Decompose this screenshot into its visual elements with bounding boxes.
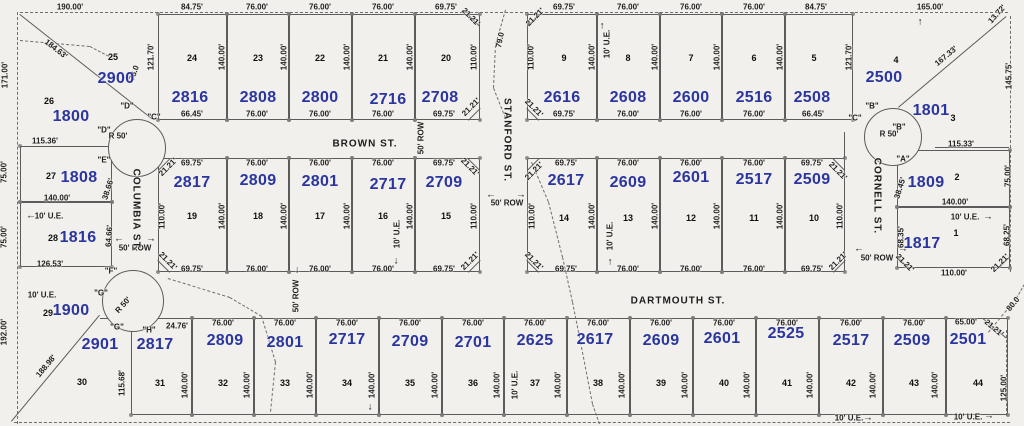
arrow-icon: ↓	[394, 256, 399, 267]
dimension-label: 69.75'	[553, 110, 575, 119]
lot-number: 43	[909, 378, 919, 388]
survey-monument-dot	[478, 118, 482, 122]
dimension-label: 140.00'	[588, 203, 597, 229]
survey-monument-dot	[754, 316, 758, 320]
boundary-dashed-line	[1006, 330, 1007, 416]
dimension-label: 140.00'	[306, 372, 315, 398]
lot-number: 1	[953, 228, 958, 238]
dimension-label: 69.75'	[553, 3, 575, 12]
dimension-label: 64.66'	[104, 225, 115, 247]
dimension-label: 121.70'	[845, 44, 854, 70]
dimension-label: 140.00'	[218, 44, 227, 70]
dimension-label: 76.00'	[617, 110, 639, 119]
lot-number: 11	[749, 213, 759, 223]
dimension-label: "B"	[865, 102, 878, 111]
lot-number: 10	[809, 213, 819, 223]
dimension-label: "E"	[98, 156, 111, 165]
lot-address: 2509	[894, 332, 931, 350]
lot-number: 41	[782, 378, 792, 388]
survey-monument-dot	[377, 413, 381, 417]
dimension-label: 110.00'	[941, 269, 967, 278]
lot-number: 7	[688, 53, 693, 63]
dimension-label: 140.00'	[776, 44, 785, 70]
lot-address: 1816	[60, 229, 97, 247]
survey-monument-dot	[944, 316, 948, 320]
lot-number: 30	[77, 377, 87, 387]
survey-monument-dot	[190, 413, 194, 417]
dimension-label: "H"	[142, 326, 155, 335]
lot-address: 2616	[544, 89, 581, 107]
dimension-label: 76.00'	[372, 110, 394, 119]
dimension-label: 10' U.E.	[35, 212, 64, 221]
dimension-label: 140.00'	[776, 203, 785, 229]
survey-monument-dot	[895, 266, 899, 270]
dimension-label: 140.00'	[493, 372, 502, 398]
dimension-label: 110.00'	[470, 44, 479, 70]
dimension-label: 76.00'	[309, 159, 331, 168]
survey-monument-dot	[225, 156, 229, 160]
dimension-label: 76.00'	[617, 159, 639, 168]
survey-monument-dot	[525, 270, 529, 274]
lot-address: 2617	[577, 331, 614, 349]
dimension-label: 76.00'	[713, 319, 735, 328]
dimension-label: 76.00'	[743, 110, 765, 119]
lot-address: 2625	[517, 332, 554, 350]
lot-number: 14	[559, 213, 569, 223]
dimension-label: 76.00'	[274, 319, 296, 328]
arrow-icon: ↑	[600, 21, 605, 32]
lot-address: 2509	[794, 171, 831, 189]
survey-monument-dot	[314, 316, 318, 320]
street-label: CORNELL ST.	[872, 158, 883, 234]
survey-monument-dot	[413, 270, 417, 274]
dimension-label: 76.00'	[246, 159, 268, 168]
arrow-icon: ↑	[918, 17, 923, 28]
lot-line	[844, 132, 845, 158]
survey-monument-dot	[252, 316, 256, 320]
lot-address: 2501	[950, 331, 987, 349]
arrow-icon: ↓	[368, 402, 373, 413]
survey-monument-dot	[658, 118, 662, 122]
parcel	[254, 318, 316, 415]
lot-address: 2608	[610, 89, 647, 107]
survey-monument-dot	[595, 118, 599, 122]
arrow-icon: →	[516, 190, 526, 201]
lot-number: 20	[441, 53, 451, 63]
dimension-label: 75.00'	[0, 161, 9, 183]
dimension-label: 69.75'	[555, 159, 577, 168]
arrow-icon: ←	[114, 234, 124, 245]
dimension-label: 76.00'	[680, 3, 702, 12]
boundary-dashed-line	[17, 12, 18, 424]
survey-monument-dot	[129, 413, 133, 417]
dimension-label: 76.00'	[372, 159, 394, 168]
dimension-label: 69.75'	[435, 3, 457, 12]
dimension-label: 140.00'	[280, 44, 289, 70]
dimension-label: 140.00'	[618, 372, 627, 398]
dimension-label: 76.00'	[372, 265, 394, 274]
survey-monument-dot	[843, 270, 847, 274]
dimension-label: 76.00'	[372, 3, 394, 12]
dimension-label: 76.00'	[212, 319, 234, 328]
dimension-label: 110.00'	[836, 203, 845, 229]
survey-monument-dot	[783, 118, 787, 122]
dimension-label: 10' U.E.	[603, 30, 612, 59]
dimension-label: 115.68'	[118, 370, 127, 396]
dimension-label: 69.75'	[181, 159, 203, 168]
lot-address: 2801	[267, 334, 304, 352]
dimension-label: 69.75'	[801, 265, 823, 274]
dimension-label: 115.33'	[948, 140, 974, 149]
lot-number: 33	[280, 378, 290, 388]
dimension-label: "A"	[896, 155, 909, 164]
boundary-dashed-line	[493, 45, 496, 88]
dimension-label: 121.70'	[147, 44, 156, 70]
dimension-label: 140.00'	[743, 372, 752, 398]
dimension-label: 140.00'	[181, 372, 190, 398]
dimension-label: 69.75'	[433, 159, 455, 168]
lot-address: 1808	[61, 169, 98, 187]
lot-address: 1817	[904, 235, 941, 253]
lot-number: 22	[315, 53, 325, 63]
survey-monument-dot	[817, 316, 821, 320]
lot-number: 4	[893, 55, 898, 65]
survey-monument-dot	[525, 118, 529, 122]
lot-address: 2517	[736, 171, 773, 189]
arrow-icon: ←	[26, 211, 36, 222]
lot-line	[11, 315, 100, 422]
dimension-label: 140.00'	[942, 198, 968, 207]
dimension-label: 140.00'	[406, 44, 415, 70]
dimension-label: 10' U.E.	[954, 413, 983, 422]
lot-number: 23	[253, 53, 263, 63]
dimension-label: 76.00'	[336, 319, 358, 328]
lot-address: 2609	[610, 174, 647, 192]
lot-address: 1900	[53, 302, 90, 320]
lot-number: 6	[751, 53, 756, 63]
lot-address: 2601	[673, 169, 710, 187]
survey-monument-dot	[225, 270, 229, 274]
arrow-icon: ↓	[295, 265, 300, 276]
survey-monument-dot	[628, 316, 632, 320]
dimension-label: 10' U.E.	[28, 291, 57, 300]
lot-number: 44	[973, 378, 983, 388]
dimension-label: 76.00'	[399, 319, 421, 328]
survey-monument-dot	[287, 156, 291, 160]
dimension-label: 76.00'	[524, 319, 546, 328]
dimension-label: 171.00'	[1, 62, 10, 88]
survey-monument-dot	[287, 118, 291, 122]
survey-monument-dot	[110, 200, 114, 204]
dimension-label: 115.36'	[32, 137, 58, 146]
dimension-label: 65.00'	[955, 318, 977, 327]
lot-address: 2716	[370, 91, 407, 109]
dimension-label: 69.75'	[433, 265, 455, 274]
dimension-label: 140.00'	[651, 203, 660, 229]
dimension-label: 10' U.E.	[393, 220, 402, 249]
lot-line	[898, 16, 1007, 108]
dimension-label: 126.53'	[37, 260, 63, 269]
survey-monument-dot	[658, 270, 662, 274]
dimension-label: 140.00'	[218, 203, 227, 229]
boundary-dashed-line	[20, 12, 1008, 13]
dimension-label: "C"	[147, 113, 160, 122]
lot-number: 26	[44, 96, 54, 106]
dimension-label: 76.00'	[309, 110, 331, 119]
survey-monument-dot	[895, 205, 899, 209]
dimension-label: 140.00'	[651, 44, 660, 70]
parcel	[442, 318, 504, 415]
lot-address: 2600	[673, 89, 710, 107]
survey-monument-dot	[595, 270, 599, 274]
dimension-label: 84.75'	[805, 3, 827, 12]
survey-monument-dot	[595, 156, 599, 160]
lot-address: 2901	[82, 336, 119, 354]
lot-number: 42	[846, 378, 856, 388]
lot-number: 39	[656, 378, 666, 388]
lot-number: 29	[43, 308, 53, 318]
lot-number: 13	[623, 213, 633, 223]
arrow-icon: ←	[486, 190, 496, 201]
lot-address: 2609	[643, 332, 680, 350]
survey-monument-dot	[377, 316, 381, 320]
lot-address: 2601	[704, 330, 741, 348]
survey-monument-dot	[565, 316, 569, 320]
lot-address: 2808	[240, 89, 277, 107]
dimension-label: 140.00'	[713, 44, 722, 70]
lot-address: 2717	[329, 331, 366, 349]
lot-address: 2809	[207, 332, 244, 350]
lot-address: 2617	[548, 172, 585, 190]
lot-number: 12	[686, 213, 696, 223]
arrow-icon: ←	[854, 244, 864, 255]
lot-number: 21	[378, 53, 388, 63]
plat-map: 190.00'84.75'76.00'76.00'76.00'69.75'21.…	[0, 0, 1024, 426]
street-label: STANFORD ST.	[502, 98, 513, 182]
dimension-label: 110.00'	[470, 203, 479, 229]
dimension-label: 190.00'	[57, 3, 83, 12]
lot-number: 27	[46, 171, 56, 181]
survey-monument-dot	[691, 413, 695, 417]
dimension-label: 50' ROW	[861, 254, 894, 263]
dimension-label: 24.76'	[166, 322, 188, 331]
survey-monument-dot	[658, 156, 662, 160]
lot-address: 1800	[53, 108, 90, 126]
lot-number: 17	[315, 211, 325, 221]
lot-number: 2	[954, 172, 959, 182]
survey-monument-dot	[18, 265, 22, 269]
dimension-label: 140.00'	[406, 203, 415, 229]
lot-number: 19	[187, 211, 197, 221]
survey-monument-dot	[190, 316, 194, 320]
dimension-label: 140.00'	[368, 372, 377, 398]
lot-number: 25	[108, 52, 118, 62]
lot-number: 5	[811, 53, 816, 63]
dimension-label: "F"	[105, 267, 117, 276]
lot-address: 2817	[174, 174, 211, 192]
survey-monument-dot	[478, 156, 482, 160]
lot-number: 37	[530, 378, 540, 388]
lot-address: 2525	[768, 325, 805, 343]
lot-address: 2800	[302, 89, 339, 107]
lot-number: 28	[48, 233, 58, 243]
survey-monument-dot	[252, 413, 256, 417]
dimension-label: 79.0	[494, 31, 506, 48]
arrow-icon: →	[984, 411, 994, 422]
survey-monument-dot	[225, 118, 229, 122]
dimension-label: 188.98'	[34, 353, 58, 379]
lot-number: 31	[155, 378, 165, 388]
arrow-icon: →	[863, 413, 873, 424]
dimension-label: 68.25'	[1003, 224, 1012, 246]
survey-monument-dot	[720, 156, 724, 160]
dimension-label: 140.00'	[343, 44, 352, 70]
arrow-icon: ↑	[608, 257, 613, 268]
lot-address: 2709	[426, 174, 463, 192]
dimension-label: 76.00'	[680, 265, 702, 274]
dimension-label: 10' U.E.	[951, 213, 980, 222]
lot-address: 2817	[137, 336, 174, 354]
street-label: BROWN ST.	[332, 139, 397, 150]
survey-monument-dot	[881, 413, 885, 417]
dimension-label: 10' U.E.	[835, 414, 864, 423]
dimension-label: 76.00'	[587, 319, 609, 328]
survey-monument-dot	[881, 316, 885, 320]
dimension-label: 76.00'	[680, 159, 702, 168]
survey-monument-dot	[350, 118, 354, 122]
dimension-label: 75.00'	[1004, 165, 1013, 187]
boundary-dashed-line	[229, 297, 261, 317]
boundary-dashed-line	[168, 278, 230, 298]
lot-address: 2816	[172, 89, 209, 107]
dimension-label: "G"	[94, 289, 108, 298]
lot-number: 35	[405, 378, 415, 388]
dimension-label: 66.45'	[802, 110, 824, 119]
dimension-label: 140.00'	[280, 203, 289, 229]
dimension-label: 140.00'	[343, 203, 352, 229]
dimension-label: 50' ROW	[292, 280, 301, 313]
dimension-label: 110.00'	[527, 44, 536, 70]
dimension-label: 69.75'	[181, 265, 203, 274]
survey-monument-dot	[720, 118, 724, 122]
dimension-label: 165.00'	[917, 3, 943, 12]
survey-monument-dot	[783, 270, 787, 274]
survey-monument-dot	[314, 413, 318, 417]
survey-monument-dot	[350, 156, 354, 160]
lot-number: 9	[561, 53, 566, 63]
dimension-label: 76.00'	[903, 319, 925, 328]
lot-number: 36	[468, 378, 478, 388]
dimension-label: 76.00'	[840, 319, 862, 328]
survey-monument-dot	[817, 413, 821, 417]
dimension-label: 140.00'	[713, 203, 722, 229]
dimension-label: 76.00'	[246, 110, 268, 119]
lot-address: 2708	[422, 89, 459, 107]
survey-monument-dot	[1006, 316, 1010, 320]
survey-monument-dot	[478, 270, 482, 274]
survey-monument-dot	[502, 316, 506, 320]
lot-address: 2701	[455, 334, 492, 352]
survey-monument-dot	[156, 270, 160, 274]
dimension-label: 76.00'	[246, 265, 268, 274]
dimension-label: 140.00'	[681, 372, 690, 398]
survey-monument-dot	[18, 200, 22, 204]
lot-number: 16	[378, 211, 388, 221]
lot-number: 32	[218, 378, 228, 388]
survey-monument-dot	[502, 413, 506, 417]
survey-monument-dot	[944, 413, 948, 417]
lot-number: 3	[950, 113, 955, 123]
survey-monument-dot	[440, 316, 444, 320]
survey-monument-dot	[525, 156, 529, 160]
survey-monument-dot	[720, 270, 724, 274]
lot-number: 34	[342, 378, 352, 388]
survey-monument-dot	[440, 413, 444, 417]
lot-address: 1809	[908, 174, 945, 192]
survey-monument-dot	[628, 413, 632, 417]
dimension-label: 110.00'	[528, 203, 537, 229]
lot-address: 2516	[736, 89, 773, 107]
dimension-label: 69.75'	[801, 159, 823, 168]
dimension-label: 110.00'	[158, 203, 167, 229]
lot-number: 38	[593, 378, 603, 388]
dimension-label: 125.00'	[1000, 375, 1009, 401]
dimension-label: 140.00'	[554, 372, 563, 398]
dimension-label: 76.00'	[743, 159, 765, 168]
dimension-label: R 50'	[880, 130, 899, 139]
survey-monument-dot	[565, 413, 569, 417]
dimension-label: 69.75'	[555, 265, 577, 274]
lot-number: 15	[441, 211, 451, 221]
dimension-label: 76.00'	[650, 319, 672, 328]
survey-monument-dot	[691, 316, 695, 320]
lot-address: 2801	[302, 173, 339, 191]
dimension-label: 76.00'	[309, 265, 331, 274]
lot-number: 8	[625, 53, 630, 63]
dimension-label: 140.00'	[44, 194, 70, 203]
survey-monument-dot	[287, 270, 291, 274]
survey-monument-dot	[783, 156, 787, 160]
lot-address: 2709	[392, 333, 429, 351]
dimension-label: 140.00'	[931, 372, 940, 398]
lot-number: 40	[719, 378, 729, 388]
dimension-label: 84.75'	[181, 3, 203, 12]
lot-address: 2809	[240, 172, 277, 190]
survey-monument-dot	[413, 156, 417, 160]
lot-address: 2500	[866, 69, 903, 87]
dimension-label: 76.00'	[743, 3, 765, 12]
lot-number: 18	[253, 211, 263, 221]
dimension-label: 76.00'	[680, 110, 702, 119]
dimension-label: 76.00'	[617, 3, 639, 12]
lot-number: 24	[187, 53, 197, 63]
arrow-icon: →	[146, 234, 156, 245]
dimension-label: 50' ROW	[417, 122, 426, 155]
lot-address: 2900	[98, 70, 135, 88]
arrow-icon: →	[983, 212, 993, 223]
dimension-label: 10' U.E.	[511, 371, 520, 400]
dimension-label: 167.33'	[933, 44, 959, 68]
lot-line	[20, 146, 96, 147]
dimension-label: 140.00'	[588, 44, 597, 70]
dimension-label: 140.00'	[431, 372, 440, 398]
dimension-label: R 50'	[109, 132, 128, 141]
dimension-label: 10' U.E.	[606, 222, 615, 251]
lot-address: 1801	[913, 102, 950, 120]
parcel	[131, 318, 192, 415]
dimension-label: 76.00'	[309, 3, 331, 12]
dimension-label: "G"	[110, 323, 124, 332]
